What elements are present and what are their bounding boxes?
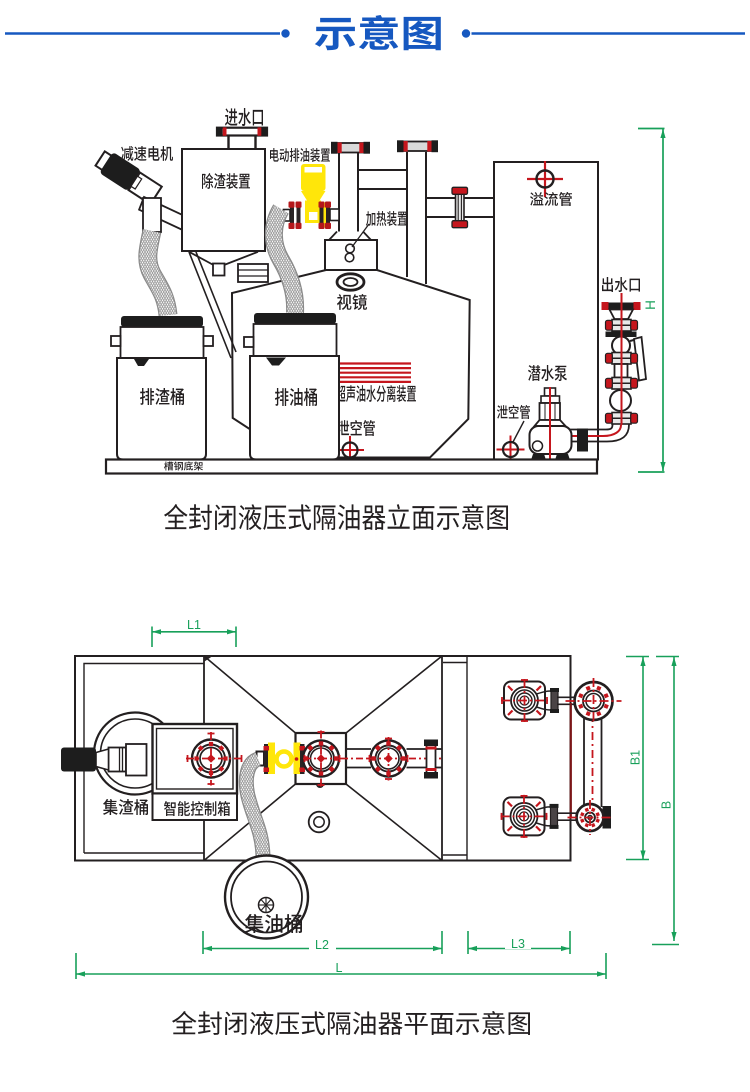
svg-text:L2: L2 [315,938,329,952]
svg-text:L3: L3 [511,937,525,951]
svg-text:L1: L1 [187,618,201,632]
svg-text:B1: B1 [629,750,643,765]
svg-text:B: B [660,801,674,809]
svg-text:H: H [643,300,658,310]
svg-text:L: L [336,961,343,975]
